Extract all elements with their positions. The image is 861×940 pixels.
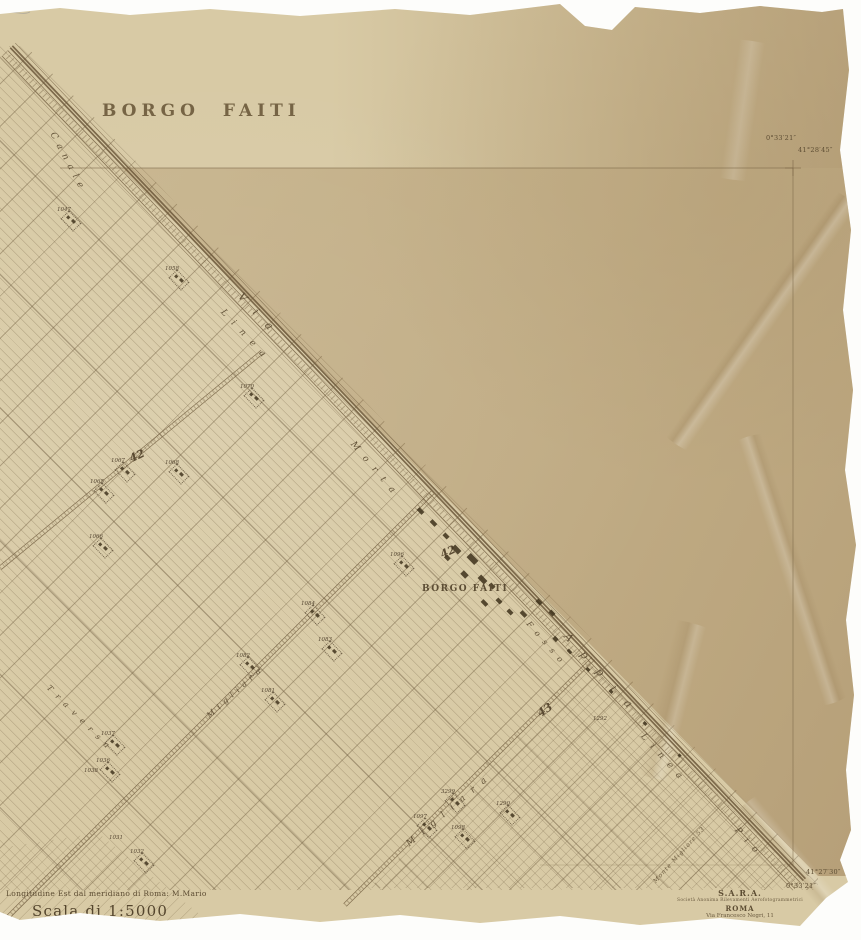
farm-building-icon [144, 861, 149, 866]
sheet-title: BORGO FAITI [102, 101, 301, 121]
pencil-annotation [4, 6, 32, 13]
farm-building-icon [404, 564, 409, 569]
farm-building-icon [249, 392, 253, 396]
farm-building-icon [427, 826, 432, 831]
farm-building-icon [115, 743, 120, 748]
farm-building-icon [71, 219, 76, 224]
farm-building-icon [460, 833, 464, 837]
farm-building-icon [310, 609, 314, 613]
farm-building-icon [327, 645, 331, 649]
farm-building-icon [179, 472, 184, 477]
farm-building-icon [332, 649, 337, 654]
village-label: BORGO FAITI [422, 584, 508, 594]
farm-building-icon [315, 613, 320, 618]
scale-label: Scala di 1:5000 [32, 902, 168, 920]
farm-building-icon [66, 215, 70, 219]
migliara-43-road [344, 657, 595, 906]
publisher-name: S.A.R.A. [660, 888, 820, 898]
farm-building-icon [270, 696, 274, 700]
scanned-map-sheet: CanaleViaLineaMortaFossoAppiaLineaPioMig… [0, 0, 861, 940]
publisher-city: ROMA [660, 904, 820, 913]
farm-building-icon [510, 813, 515, 818]
coordinate-top-right-longitude: 0°33′21″ [766, 134, 796, 142]
parcel-number-label: 1031 [109, 835, 123, 841]
farm-building-icon [275, 700, 280, 705]
parcel-number-label: 1292 [593, 716, 607, 722]
publisher-subtitle: Società Anonima Rilevamenti Aerofotogram… [660, 898, 820, 903]
farm-building-icon [450, 797, 454, 801]
farm-building-icon [104, 491, 109, 496]
farm-building-icon [505, 809, 509, 813]
farm-building-icon [98, 542, 102, 546]
farm-building-icon [99, 487, 103, 491]
farm-building-icon [139, 857, 143, 861]
publisher-block: S.A.R.A. Società Anonima Rilevamenti Aer… [660, 888, 820, 919]
farm-building-icon [250, 665, 255, 670]
farm-building-icon [245, 661, 249, 665]
farm-building-icon [422, 822, 426, 826]
farm-building-icon [125, 470, 130, 475]
longitude-note: Longitudine Est dal meridiano di Roma: M… [6, 889, 207, 898]
coordinate-bottom-right-latitude: 41°27′30″ [806, 868, 841, 876]
farm-building-icon [110, 770, 115, 775]
farm-building-icon [103, 546, 108, 551]
publisher-address: Via Francesco Negri, 11 [660, 913, 820, 919]
farm-building-icon [105, 766, 109, 770]
farm-building-icon [174, 274, 178, 278]
farm-building-icon [110, 739, 114, 743]
farm-building-icon [399, 560, 403, 564]
paper-sheet: CanaleViaLineaMortaFossoAppiaLineaPioMig… [0, 0, 861, 940]
farm-building-icon [465, 837, 470, 842]
parcel-number-label: 1038 [84, 768, 98, 774]
farm-building-icon [174, 468, 178, 472]
farm-building-icon [455, 801, 460, 806]
coordinate-top-right-latitude: 41°28′45″ [798, 146, 833, 154]
farm-building-icon [120, 466, 124, 470]
farm-building-icon [179, 278, 184, 283]
farm-building-icon [254, 396, 259, 401]
